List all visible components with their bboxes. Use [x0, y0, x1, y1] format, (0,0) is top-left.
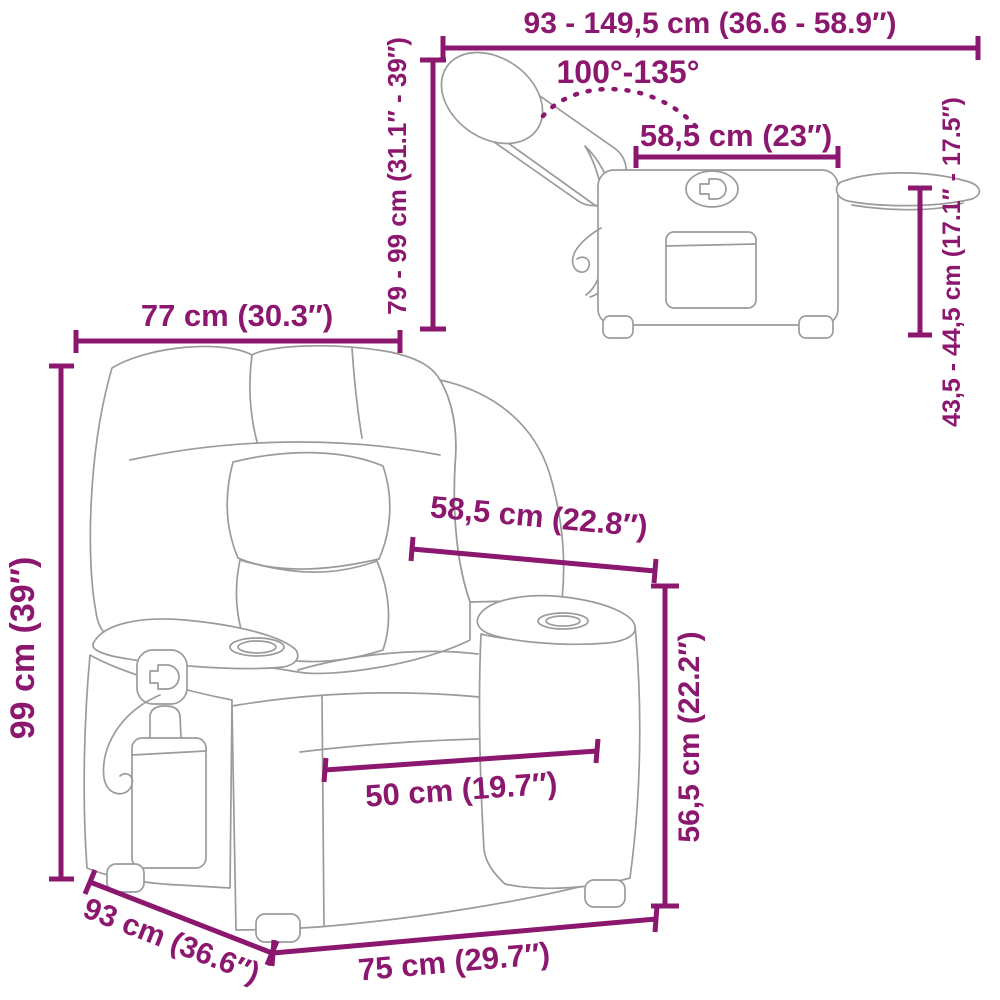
dim-top-width-label: 93 - 149,5 cm (36.6 - 58.9″)	[524, 7, 897, 40]
dim-seat-top-depth: 58,5 cm (23″)	[636, 118, 838, 168]
front-foot-left	[107, 864, 144, 892]
dim-recline-angle-label: 100°-135°	[556, 54, 699, 90]
dim-armrest-height: 56,5 cm (22.2″)	[651, 586, 706, 906]
front-right-armrest	[477, 596, 635, 645]
dim-overall-width-label: 77 cm (30.3″)	[141, 298, 333, 333]
front-foot-right	[585, 880, 625, 907]
side-foot-right	[799, 316, 833, 338]
dimension-diagram-page: 93 - 149,5 cm (36.6 - 58.9″) 100°-135° 5…	[0, 0, 1000, 1000]
dim-overall-height: 99 cm (39″)	[4, 366, 74, 879]
dim-armrest-height-label: 56,5 cm (22.2″)	[673, 631, 706, 842]
side-pocket	[666, 232, 756, 308]
dim-footrest-height-label: 43,5 - 44,5 cm (17.1″ - 17.5″)	[938, 97, 966, 427]
dim-backrest-height: 79 - 99 cm (31.1″ - 39″)	[382, 37, 446, 329]
recliner-dimension-diagram: 93 - 149,5 cm (36.6 - 58.9″) 100°-135° 5…	[0, 0, 1000, 1000]
dim-seat-top-depth-label: 58,5 cm (23″)	[640, 118, 832, 153]
front-foot-center	[256, 914, 300, 942]
remote-control-icon-front	[137, 650, 187, 704]
front-view-chair	[84, 346, 640, 942]
side-power-cord	[573, 228, 601, 272]
dim-overall-height-label: 99 cm (39″)	[4, 557, 42, 740]
dim-top-width: 93 - 149,5 cm (36.6 - 58.9″)	[443, 7, 978, 60]
side-view-chair	[424, 34, 979, 338]
side-foot-left	[603, 316, 633, 338]
dim-backrest-height-label: 79 - 99 cm (31.1″ - 39″)	[382, 37, 412, 315]
dim-overall-width: 77 cm (30.3″)	[76, 298, 400, 353]
remote-control-icon	[686, 171, 738, 207]
front-side-pocket	[132, 738, 206, 868]
dim-footrest-height: 43,5 - 44,5 cm (17.1″ - 17.5″)	[908, 97, 966, 427]
